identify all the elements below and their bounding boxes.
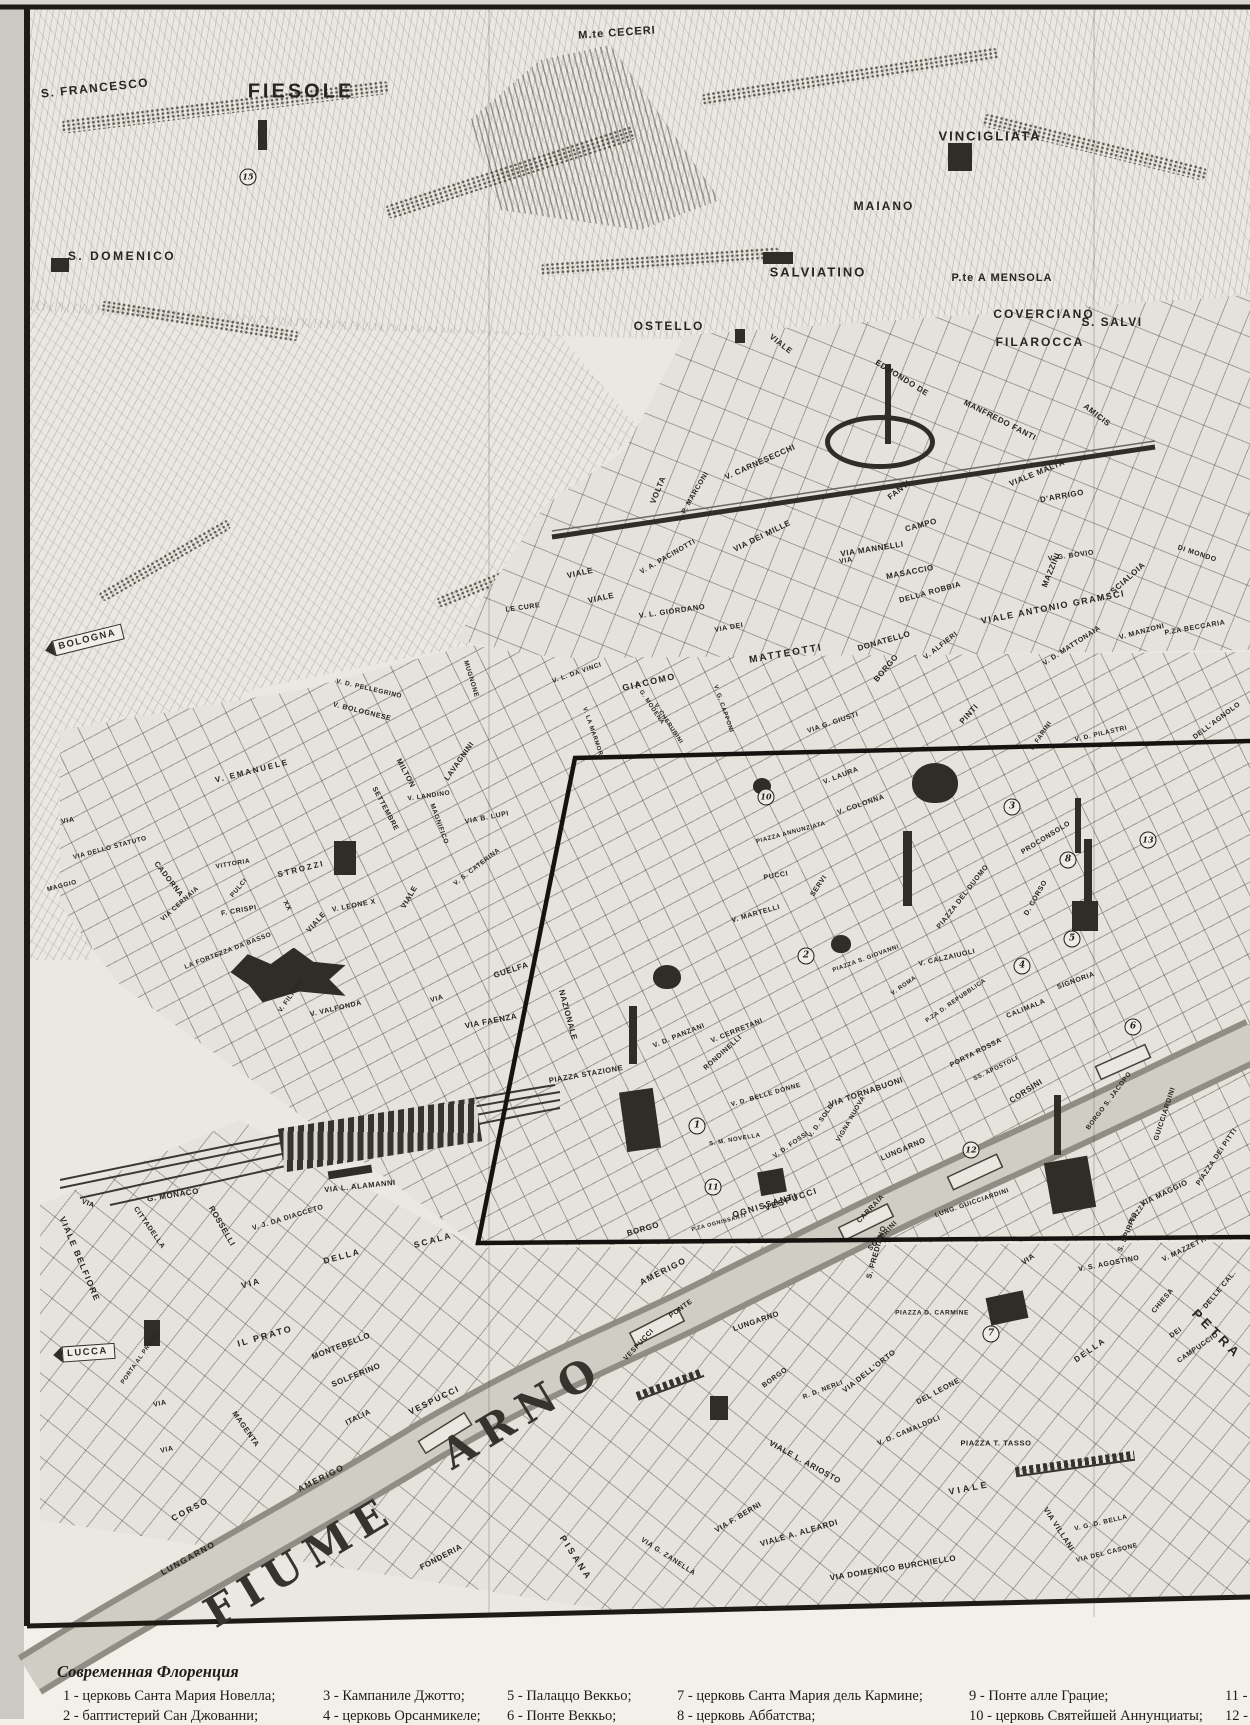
street-label: VIA (80, 1198, 95, 1209)
street-label: CORSO (169, 1495, 210, 1523)
street-label: BORGO (872, 652, 900, 683)
legend-item: 3 - Кампаниле Джотто; (323, 1689, 465, 1705)
street-label: ROSSELLI (207, 1204, 237, 1247)
street-label: DELLE CAL. (1202, 1270, 1238, 1311)
map-marker-12: 12 (963, 1142, 980, 1159)
road-sign-bologna: BOLOGNA (43, 624, 125, 659)
place-label-salviatino: SALVIATINO (770, 265, 867, 280)
street-label: V. G. D. BELLA (1074, 1513, 1129, 1532)
street-label: VIA DEL CASONE (1075, 1542, 1138, 1564)
badia-spire-glyph (1075, 798, 1081, 853)
street-label: V. D. PANZANI (652, 1022, 706, 1049)
place-label-s-domenico: S. DOMENICO (68, 249, 176, 263)
street-label: MANFREDO FANTI (962, 398, 1037, 442)
street-label: MASACCIO (885, 563, 934, 581)
s-spirito-spire-glyph (1054, 1095, 1061, 1155)
street-label: EDMONDO DE (874, 358, 931, 398)
street-label: P.ZA D. REPUBBLICA (925, 978, 988, 1024)
street-label: CADORNA (152, 859, 185, 898)
tree-band (300, 933, 420, 970)
street-label: V. A. PACINOTTI (639, 538, 697, 575)
street-label: DELL'AGNOLO (1192, 701, 1242, 741)
street-label: AMICIS (1082, 402, 1112, 429)
street-label: VIA (839, 556, 853, 565)
legend-item: 1 - церковь Санта Мария Новелла; (63, 1689, 275, 1705)
street-label: MILTON (395, 757, 418, 789)
arrow-left-icon (53, 1347, 63, 1364)
vincigliata-castle-glyph (948, 143, 972, 171)
place-label-s-francesco: S. FRANCESCO (40, 75, 150, 100)
street-label: VESPUCCI (407, 1383, 461, 1416)
street-label: V. G. BOVIO (1048, 549, 1095, 562)
map-marker-15: 15 (240, 169, 257, 186)
street-label: IL PRATO (236, 1323, 294, 1348)
street-label: VIA MANNELLI (840, 540, 904, 559)
street-label: V. LEONE X (331, 898, 376, 913)
street-label: PIAZZA DEL DUOMO (936, 864, 990, 931)
street-label: VIA CERNAIA (160, 885, 201, 923)
legend-item: 2 - баптистерий Сан Джованни; (63, 1709, 258, 1725)
street-label: SODERINI (867, 1220, 899, 1253)
street-label: VESPUCCI (623, 1328, 656, 1362)
street-label: VIA G. ZANELLA (639, 1537, 696, 1578)
river-label-arno: ARNO (432, 1343, 614, 1479)
porta-al-prato-glyph (144, 1320, 160, 1346)
street-label: VIALE (566, 566, 594, 580)
sign-label: LUCCA (62, 1343, 116, 1362)
street-label: P.ZA OGNISSANTI (691, 1213, 747, 1233)
street-label: V. D. FOSSI (772, 1130, 810, 1160)
street-label: PIAZZA ANNUNZIATA (756, 821, 827, 845)
street-label: V. CERRETANI (710, 1017, 764, 1044)
legend-item: 10 - церковь Святейшей Аннунциаты; (969, 1709, 1203, 1725)
street-label: DEL LEONE (915, 1376, 962, 1407)
street-label: SETTEMBRE (371, 786, 400, 832)
street-label: LUNGARNO (879, 1135, 927, 1162)
street-label: F. CRISPI (221, 904, 258, 917)
street-label: VIA DELL'ORTO (841, 1347, 898, 1394)
train-glyph (328, 1165, 373, 1180)
street-label: V. ALFIERI (923, 631, 960, 662)
street-label: DELLA (1072, 1336, 1107, 1364)
palazzo-vecchio-tower-glyph (1084, 839, 1092, 901)
street-label: V. COLONNA (837, 794, 886, 817)
map-marker-8: 8 (1060, 852, 1077, 869)
street-label: PIAZZA S. GIOVANNI (832, 944, 900, 974)
street-label: V. L. DA VINCI (551, 661, 602, 684)
street-label: D. CORSO (1023, 879, 1049, 917)
street-label: SCALA (413, 1230, 454, 1250)
street-label: V. P. MARCONI (676, 471, 710, 524)
s-spirito-church-glyph (1044, 1156, 1096, 1215)
street-label: MATTEOTTI (748, 642, 823, 666)
street-label: PIAZZA (1128, 1200, 1149, 1226)
street-label: VITTORIA (215, 858, 251, 871)
duomo-dome-glyph (912, 763, 958, 803)
street-label: VIA F. BERNI (713, 1500, 763, 1535)
tree-band (982, 112, 1209, 181)
smn-campanile-glyph (629, 1006, 637, 1064)
street-label: VIA VILLANI (1042, 1506, 1077, 1553)
street-label: VIALE (304, 910, 327, 935)
place-label-filarocca: FILAROCCA (996, 335, 1085, 349)
street-label: CAMPO (904, 516, 938, 533)
street-label: CITTADELLA (132, 1206, 166, 1250)
legend-item: 11 - (1225, 1689, 1247, 1705)
street-label: VIALE (768, 332, 794, 355)
street-label: V. G. CAPPONI (712, 684, 734, 733)
street-label: G. MONACO (146, 1186, 199, 1203)
ponte-s-trinita (948, 1154, 1003, 1190)
legend-item: 5 - Палаццо Веккьо; (507, 1689, 632, 1705)
porta-san-frediano-glyph (710, 1396, 728, 1420)
street-label: DEI (1168, 1326, 1183, 1339)
street-label: V. VALFONDA (309, 1000, 362, 1019)
street-label: PIAZZA DEI PITTI (1195, 1127, 1238, 1187)
street-label: GUICCIARDINI (1153, 1086, 1177, 1141)
map-marker-3: 3 (1004, 799, 1021, 816)
place-label-maiano: MAIANO (854, 199, 915, 213)
bridges (418, 1045, 1150, 1454)
street-label: PETRA (1189, 1306, 1245, 1362)
street-label: VIA (430, 994, 445, 1004)
fold-crease (1093, 5, 1095, 1617)
street-label: VIA (160, 1445, 175, 1455)
street-label: V. BOLOGNESE (332, 701, 392, 722)
street-label: MAGGIO (46, 879, 77, 894)
street-label: MAGENTA (230, 1409, 261, 1448)
russian-church-glyph (334, 841, 356, 875)
street-label: VIALE ANTONIO GRAMSCI (980, 588, 1126, 626)
road-sign-lucca: LUCCA (53, 1343, 116, 1363)
street-label: S. SPIRITO (1117, 1211, 1139, 1253)
tree-band (384, 125, 636, 220)
tree-band (954, 1434, 1046, 1470)
street-label: VIALE (948, 1479, 991, 1497)
map-marker-11: 11 (705, 1179, 722, 1196)
street-label: VIGNA NUOVA (835, 1095, 867, 1143)
street-label: RONDINELLI (703, 1034, 744, 1072)
street-label: V. J. DA DIACCETO (252, 1204, 325, 1232)
railway-campo-marte (552, 441, 1155, 537)
street-label: VIA (61, 816, 75, 825)
smn-church-glyph (619, 1088, 661, 1152)
street-label: LUNGARNO (159, 1539, 217, 1577)
street-label: VIA (153, 1399, 168, 1409)
street-label: VIA TORNABUONI (828, 1075, 904, 1109)
river-label-fiume: FIUME (195, 1485, 404, 1638)
station-platforms-glyph (278, 1098, 482, 1173)
street-label: V. D. SOLE (807, 1103, 835, 1139)
street-label: MUGNONE (462, 660, 480, 699)
street-label: ITALIA (344, 1407, 372, 1427)
legend-item: 6 - Понте Веккьо; (507, 1709, 616, 1725)
baptistery-glyph (831, 935, 851, 953)
street-label: OGNISSANTI (731, 1190, 799, 1219)
street-label: V. D. PELLEGRINO (335, 678, 402, 700)
street-label: LE CURE (505, 602, 541, 614)
ponte-alla-carraia (839, 1204, 894, 1240)
stadium-tower-glyph (885, 364, 891, 444)
street-label: PULCI (229, 877, 249, 899)
street-label: S. M. NOVELLA (709, 1133, 761, 1148)
street-label: CORSINI (1008, 1077, 1044, 1105)
legend-item: 4 - церковь Орсанмикеле; (323, 1709, 481, 1725)
street-label: CALIMALA (1006, 998, 1047, 1020)
street-label: GIACOMO (621, 671, 676, 693)
map-marker-2: 2 (798, 948, 815, 965)
street-label: DI MONDO (1177, 544, 1218, 563)
railway-station-tracks (60, 1085, 560, 1205)
piazza-dazeglio-trees (946, 662, 1014, 703)
street-label: AMERIGO (638, 1255, 688, 1287)
street-label: DONATELLO (857, 629, 912, 653)
place-label-ponte-a-mensola: P.te A MENSOLA (952, 272, 1053, 284)
fiesole-tower-glyph (258, 120, 267, 150)
street-label: SIGNORIA (1056, 971, 1095, 991)
street-label: DELLA (322, 1246, 362, 1266)
legend-item: 12 - (1225, 1709, 1248, 1725)
street-label: V. FARINI (1029, 720, 1054, 752)
street-label: V. LAURA (822, 766, 859, 786)
street-label: V. D. CAMALDOLI (876, 1415, 941, 1448)
street-label: VIA (240, 1276, 262, 1291)
stadium-glyph (825, 415, 935, 469)
street-label: PINTI (958, 702, 980, 725)
arrow-left-icon (43, 641, 56, 659)
street-label: SCIALOIA (1109, 560, 1147, 595)
map-marker-13: 13 (1140, 832, 1157, 849)
street-label: VIA DOMENICO BURCHIELLO (829, 1554, 957, 1583)
street-label: V. MANZONI (1119, 623, 1166, 642)
map-marker-6: 6 (1125, 1019, 1142, 1036)
map-border (0, 7, 1250, 1626)
legend-item: 9 - Понте алле Грацие; (969, 1689, 1108, 1705)
page-edge (0, 0, 24, 1719)
tree-band (540, 247, 780, 277)
arno-river-water (30, 1040, 1250, 1675)
city-inset-frame (478, 741, 1250, 1243)
legend-item: 8 - церковь Аббатства; (677, 1709, 815, 1725)
ponte-vecchio (1095, 1045, 1150, 1080)
place-label-coverciano: COVERCIANO (993, 307, 1094, 321)
city-wall-frediano-glyph (636, 1368, 705, 1400)
map-marker-4: 4 (1014, 958, 1031, 975)
fold-crease (488, 5, 490, 1617)
street-label: PORTA AL PRATO (120, 1333, 159, 1386)
street-label: LUNGARNO (732, 1309, 780, 1333)
street-label: VESPUCCI (763, 1185, 819, 1213)
street-label: V. D. PILASTRI (1074, 725, 1128, 744)
sign-label: BOLOGNA (52, 624, 125, 656)
tree-band (60, 80, 389, 134)
street-label: XX (281, 900, 292, 913)
street-label: SOLFERINO (330, 1361, 382, 1389)
street-label: MAGNIFICO (428, 803, 449, 845)
street-label: V. LANDINO (407, 790, 451, 803)
street-label: V. CHERUBINI (652, 703, 683, 746)
street-label: FANTI (886, 478, 912, 501)
map-marker-1: 1 (689, 1118, 706, 1135)
ostello-tower-glyph (735, 329, 745, 343)
street-label: V. FILIPPO (277, 978, 305, 1014)
street-label: V. S. CATERINA (452, 847, 501, 887)
street-label: VIA L. ALAMANNI (324, 1178, 396, 1194)
place-label-ostello: OSTELLO (634, 319, 705, 333)
map-marker-10: 10 (758, 789, 775, 806)
map-marker-7: 7 (983, 1326, 1000, 1343)
street-label: V. G. MODENA (633, 682, 665, 726)
tree-band (100, 299, 299, 342)
street-label: PONTE (668, 1298, 694, 1320)
street-label: S. FREDIANO (864, 1224, 888, 1279)
street-label: PIAZZA D. CARMINE (895, 1310, 969, 1317)
street-label: VOLTA (648, 475, 667, 505)
bridge (418, 1413, 471, 1453)
street-label: LA FORTEZZA DA BASSO (184, 931, 273, 971)
place-label-s-salvi: S. SALVI (1081, 315, 1142, 329)
street-label: MONTEBELLO (310, 1331, 371, 1362)
ponte-vespucci (630, 1309, 684, 1346)
street-label: P.ZA BECCARIA (1164, 619, 1226, 637)
street-label: AMERIGO (296, 1462, 346, 1494)
tree-band (97, 518, 232, 603)
street-label: V. MARTELLI (731, 904, 781, 924)
street-label: VIALE BELFIORE (58, 1215, 103, 1303)
street-label: DELLA ROBBIA (898, 579, 962, 604)
street-label: SS. APOSTOLI (973, 1056, 1020, 1083)
street-label: V. CARNESECCHI (723, 442, 796, 481)
street-label: PUCCI (763, 870, 789, 881)
street-label: VIALE (587, 591, 615, 605)
street-label: STROZZI (277, 859, 326, 879)
street-label: V. L. GIORDANO (638, 602, 705, 620)
street-label: VIA DELLO STATUTO (72, 835, 147, 861)
legend-title: Современная Флоренция (57, 1662, 239, 1682)
map-marker-5: 5 (1064, 931, 1081, 948)
street-label: V. ROMA (890, 975, 917, 997)
carmine-church-glyph (986, 1290, 1029, 1325)
street-label: VIA B. LUPI (464, 810, 509, 825)
street-label: BORGO (626, 1220, 660, 1238)
s-domenico-house-glyph (51, 258, 69, 272)
street-label: V. D. BELLE DONNE (730, 1082, 802, 1109)
street-label: V. LA MARMORA (581, 707, 605, 762)
street-label: VIALE (399, 884, 419, 910)
san-lorenzo-dome-glyph (653, 965, 681, 989)
street-label: BORGO (761, 1367, 789, 1390)
street-label: PORTA ROSSA (949, 1037, 1003, 1069)
street-label: PISANA (558, 1533, 595, 1582)
tree-band (701, 47, 999, 107)
scanned-florence-map-page: { "colors": { "paper": "#e9e8e1", "ink":… (0, 0, 1250, 1719)
legend-item: 7 - церковь Санта Мария дель Кармине; (677, 1689, 923, 1705)
street-label: CAMPUCCIO (1176, 1331, 1220, 1365)
arno-river-banks (30, 1040, 1250, 1675)
duomo-campanile-glyph (903, 831, 912, 906)
street-label: D'ARRIGO (1039, 488, 1084, 505)
street-label: PROCONSOLO (1020, 820, 1072, 856)
street-label: LAVAGNINI (442, 740, 475, 782)
tree-band (435, 523, 625, 609)
street-label: MAZZINI (1040, 551, 1062, 588)
street-label: VIA FAENZA (464, 1012, 518, 1031)
street-label: CHIESA (1151, 1287, 1176, 1315)
street-label: VIALE MALTA (1008, 458, 1066, 489)
ss-annunziata-dome-glyph (753, 778, 771, 794)
street-label: CARRAIA (856, 1193, 886, 1224)
street-label: V. S. AGOSTINO (1078, 1255, 1140, 1274)
street-label: VIA MAGGIO (1139, 1178, 1189, 1209)
street-label: NAZIONALE (557, 989, 579, 1042)
street-label: SERVI (809, 874, 828, 898)
place-label-monte-ceceri: M.te CECERI (578, 24, 656, 41)
street-label: FONDERIA (418, 1542, 463, 1572)
street-label: V. MAZZETTA (1161, 1235, 1211, 1264)
street-label: VIA DEI (714, 622, 744, 634)
street-label: VIA G. GIUSTI (806, 711, 859, 735)
street-label: GUELFA (492, 960, 529, 980)
street-label: VIA DEI MILLE (732, 518, 792, 554)
street-label: V. CALZAIUOLI (918, 948, 976, 968)
street-label: V. EMANUELE (214, 757, 290, 784)
page-edge-top (0, 0, 1250, 5)
street-label: R. D. NERLI (802, 1379, 844, 1401)
street-label: VIALE L. ARIOSTO (768, 1438, 843, 1485)
ognissanti-church-glyph (757, 1168, 787, 1196)
street-label: VIA (1020, 1251, 1037, 1267)
street-label: VIALE A. ALEARDI (759, 1518, 839, 1549)
street-label: PIAZZA STAZIONE (548, 1063, 624, 1085)
street-label: LUNG. GUICCIARDINI (934, 1187, 1010, 1219)
